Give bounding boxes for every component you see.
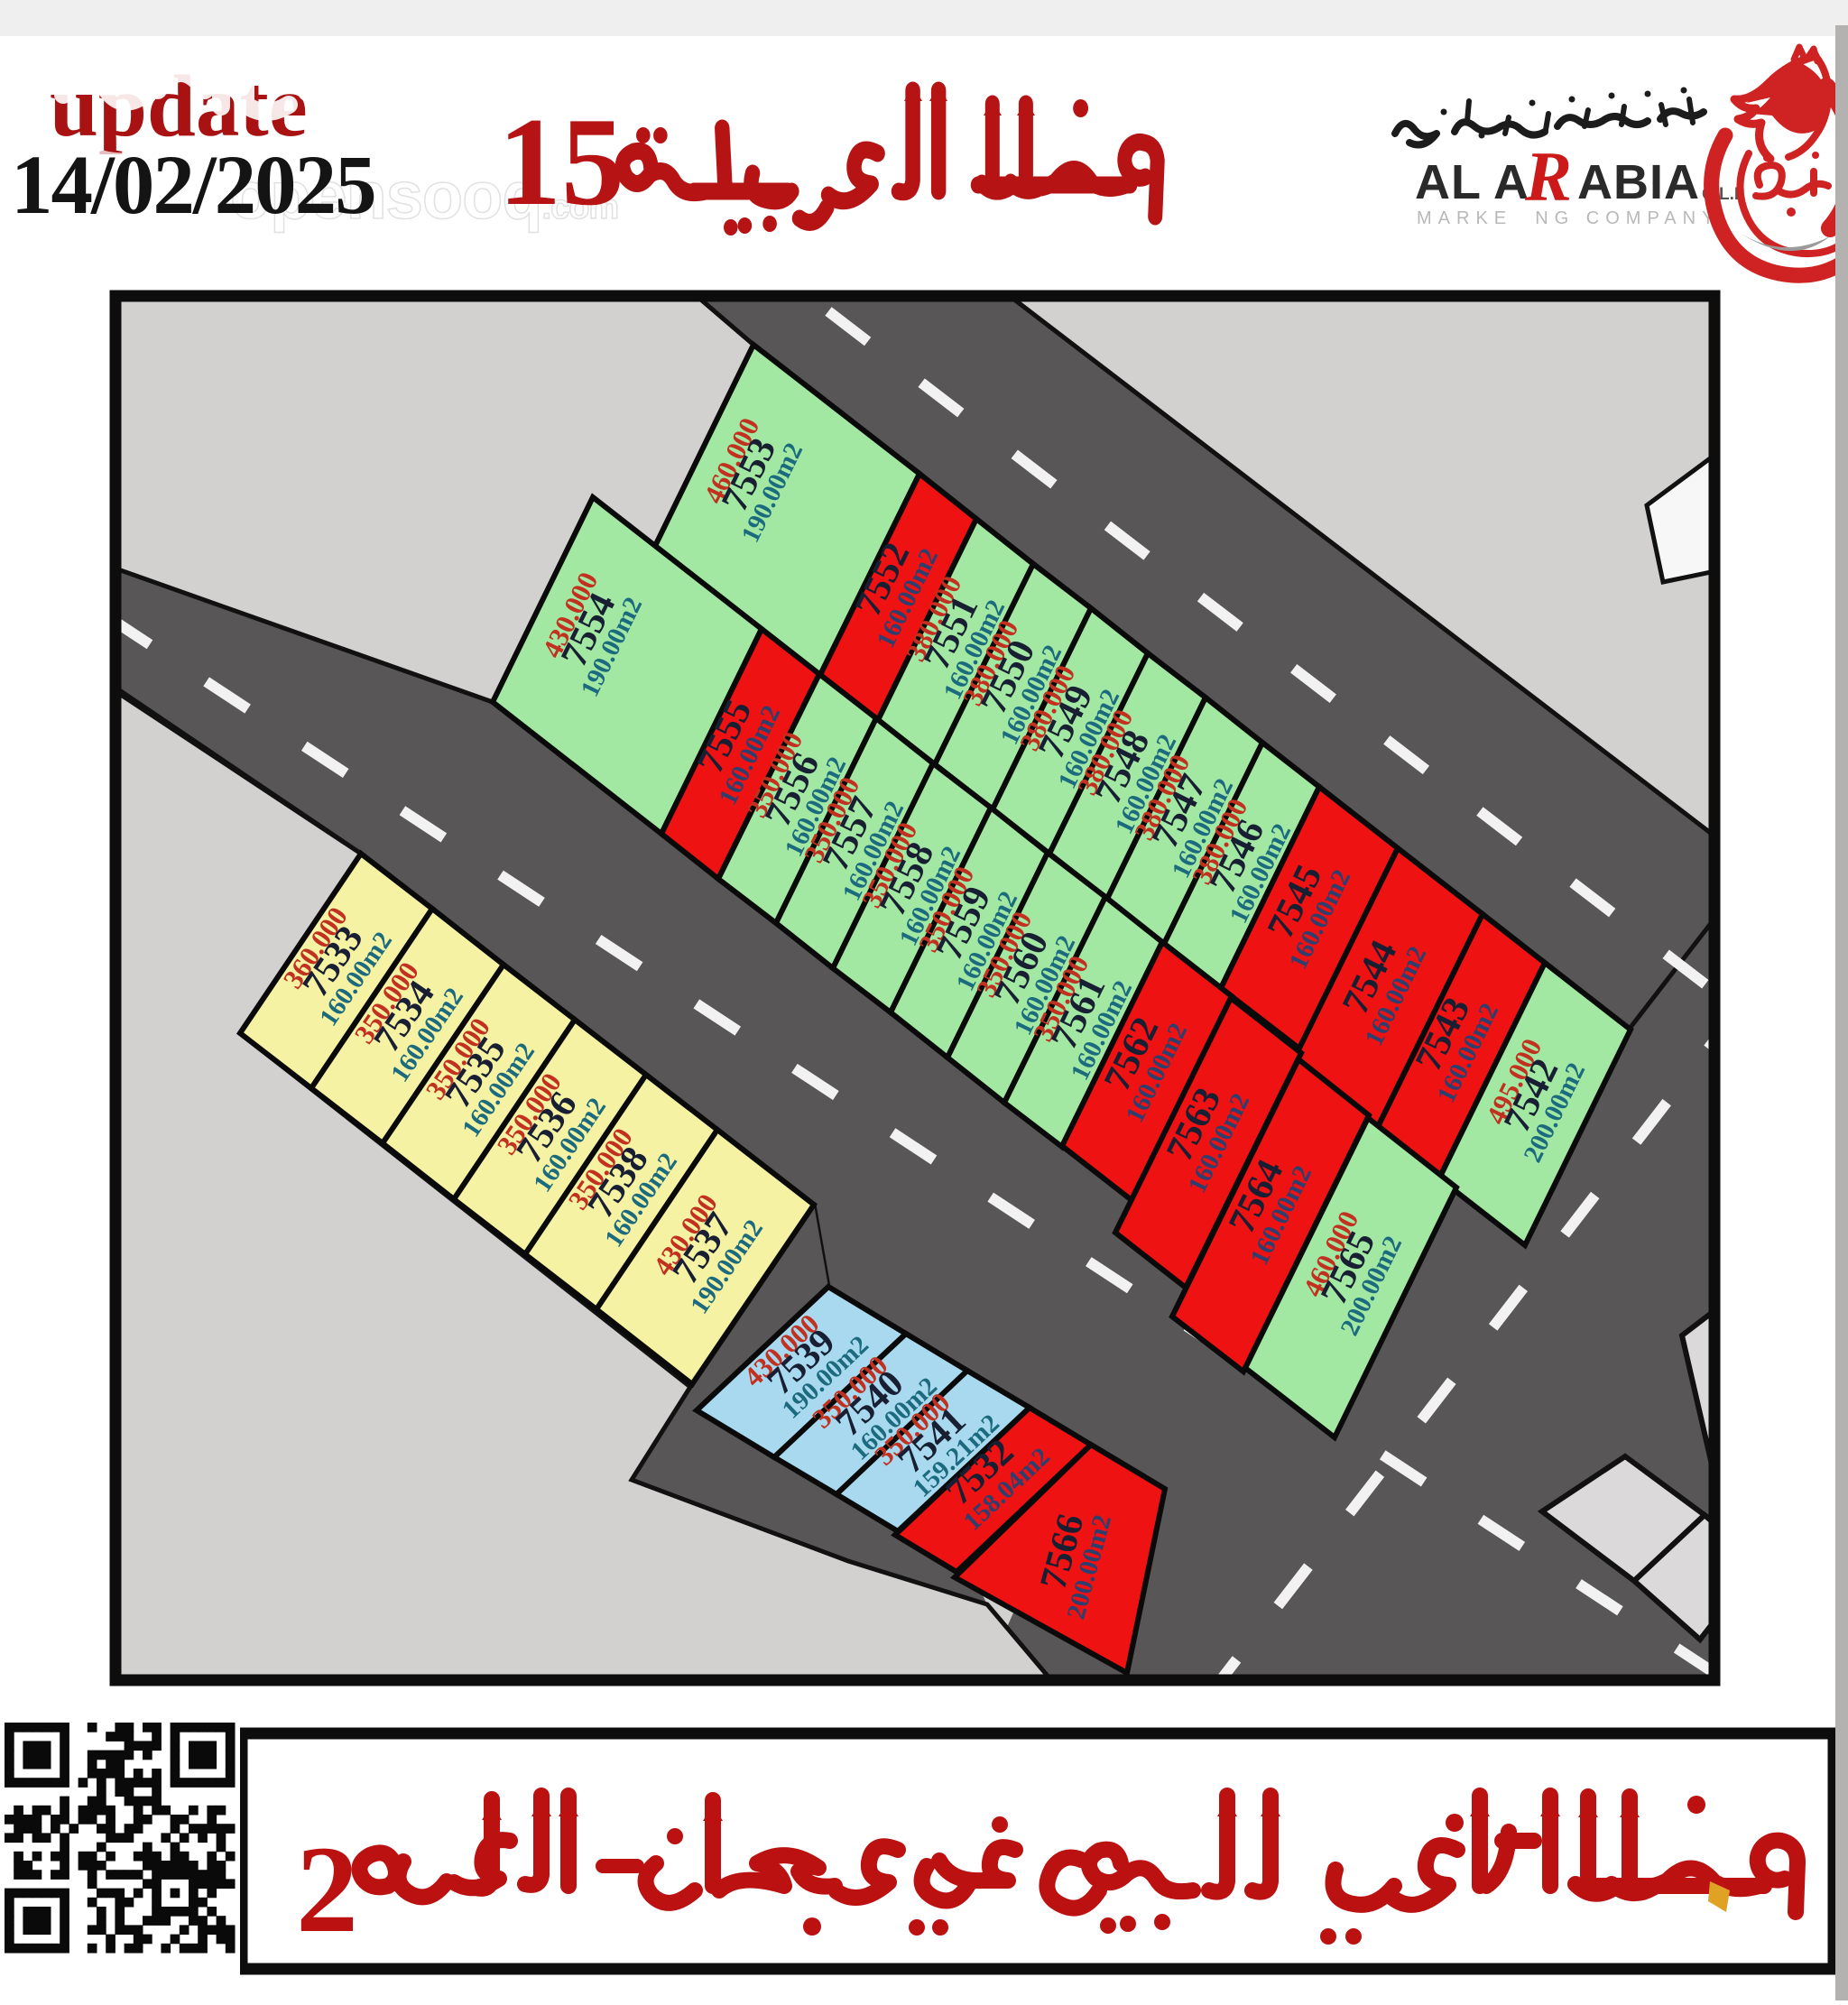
svg-text:15: 15 xyxy=(498,92,624,232)
svg-text:AL A: AL A xyxy=(1415,155,1529,209)
svg-text:2: 2 xyxy=(296,1820,358,1958)
svg-text:R: R xyxy=(1524,137,1572,216)
svg-text:14/02/2025: 14/02/2025 xyxy=(11,139,375,232)
svg-text:MARKE NG COMPANY: MARKE NG COMPANY xyxy=(1417,208,1720,228)
svg-text:ABIA: ABIA xyxy=(1577,155,1700,209)
